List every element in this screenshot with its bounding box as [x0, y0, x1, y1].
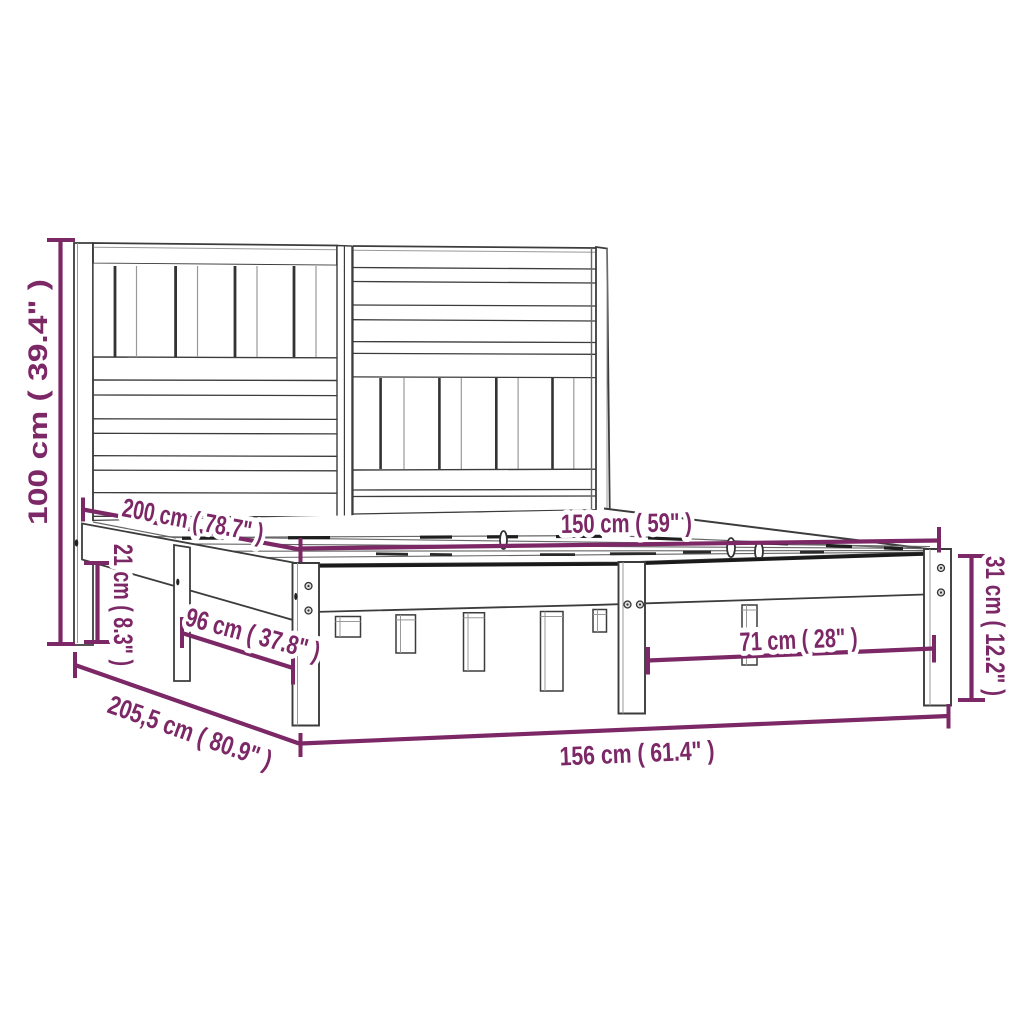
- svg-text:31 cm ( 12.2" ): 31 cm ( 12.2" ): [980, 556, 1010, 696]
- svg-text:21 cm ( 8.3" ): 21 cm ( 8.3" ): [108, 544, 138, 666]
- svg-text:71 cm ( 28" ): 71 cm ( 28" ): [739, 622, 858, 657]
- svg-text:150 cm ( 59" ): 150 cm ( 59" ): [561, 507, 692, 539]
- svg-text:100 cm ( 39.4" ): 100 cm ( 39.4" ): [23, 279, 53, 525]
